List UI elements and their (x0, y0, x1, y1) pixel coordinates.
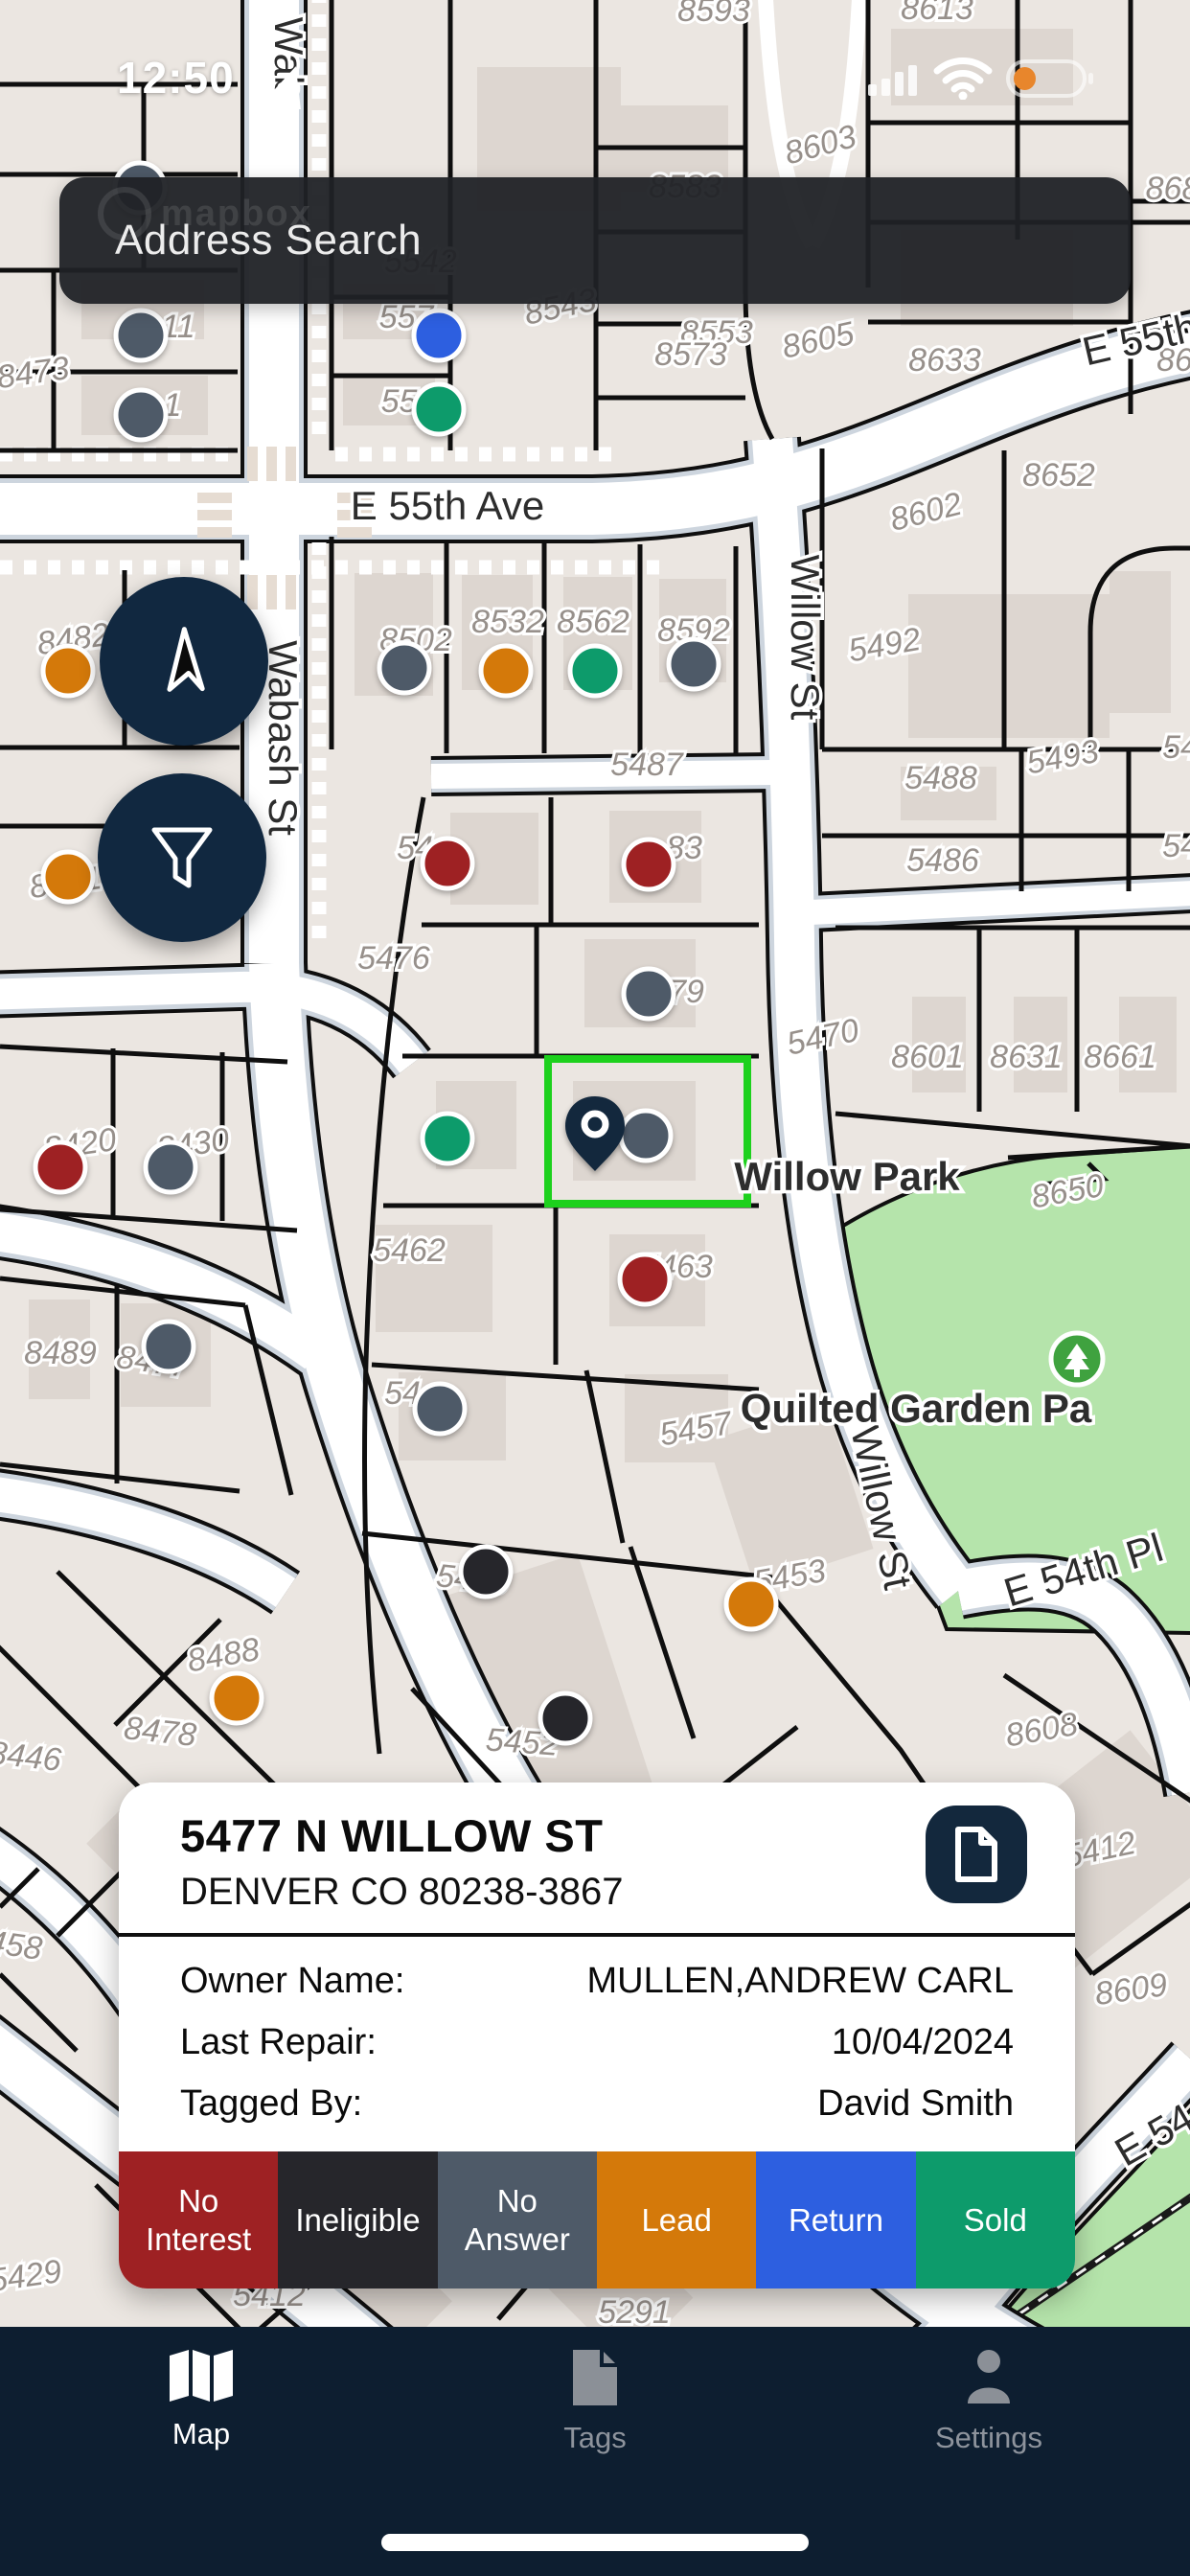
status-button-return[interactable]: Return (756, 2151, 915, 2288)
property-field-row: Owner Name:MULLEN,ANDREW CARL (180, 1950, 1014, 2012)
parcel-number-label: 8489 (24, 1335, 97, 1371)
navigation-arrow-icon (141, 618, 227, 704)
field-label: Last Repair: (180, 2022, 377, 2063)
status-button-lead[interactable]: Lead (597, 2151, 756, 2288)
map-status-dot-no_answer[interactable] (624, 969, 674, 1019)
map-status-dot-no_interest[interactable] (624, 839, 674, 889)
status-button-sold[interactable]: Sold (916, 2151, 1075, 2288)
mapbox-watermark: mapbox (98, 187, 312, 241)
locate-button[interactable] (100, 577, 268, 746)
street-name-label: Quilted Garden Pa (741, 1386, 1092, 1431)
parcel-number-label: 8613 (901, 0, 973, 27)
map-status-dot-sold[interactable] (570, 646, 620, 696)
map-status-dot-no_answer[interactable] (146, 1142, 195, 1192)
status-button-ineligible[interactable]: Ineligible (278, 2151, 437, 2288)
ios-status-bar: 12:50 (0, 52, 1190, 109)
nav-tab-map[interactable]: Map (77, 2348, 326, 2451)
map-status-dot-sold[interactable] (423, 1114, 472, 1163)
property-field-row: Last Repair:10/04/2024 (180, 2012, 1014, 2073)
nav-tab-label: Tags (563, 2421, 626, 2455)
parcel-number-label: 8631 (990, 1039, 1063, 1075)
park-tree-icon (1051, 1333, 1103, 1385)
parcel-number-label: 5486 (906, 842, 979, 879)
field-label: Owner Name: (180, 1961, 404, 2002)
map-status-dot-ineligible[interactable] (461, 1547, 511, 1597)
tags-file-icon (569, 2348, 621, 2407)
parcel-number-label: 5291 (598, 2294, 671, 2331)
parcel-number-label: 8562 (557, 604, 629, 640)
field-label: Tagged By: (180, 2083, 362, 2125)
filter-button[interactable] (98, 773, 266, 942)
map-status-dot-ineligible[interactable] (540, 1693, 590, 1743)
map-icon (168, 2348, 235, 2403)
parcel-number-label: 8573 (654, 336, 727, 373)
property-address: 5477 N WILLOW ST (180, 1809, 604, 1862)
parcel-number-label: 8532 (471, 604, 544, 640)
field-value: MULLEN,ANDREW CARL (586, 1961, 1014, 2002)
parcel-number-label: 8601 (891, 1039, 964, 1075)
field-value: 10/04/2024 (832, 2022, 1014, 2063)
map-status-dot-no_answer[interactable] (144, 1322, 194, 1371)
home-indicator[interactable] (381, 2534, 809, 2551)
map-status-dot-return[interactable] (414, 310, 464, 360)
filter-funnel-icon (141, 816, 223, 899)
parcel-number-label: 5487 (610, 747, 684, 783)
parcel-number-label: 54 (1162, 729, 1190, 766)
cellular-signal-icon (868, 59, 920, 98)
parcel-number-label: 868 (1146, 171, 1190, 207)
nav-tab-label: Map (172, 2417, 230, 2451)
parcel-number-label: 8661 (1084, 1039, 1156, 1075)
property-document-button[interactable] (926, 1805, 1027, 1903)
nav-tab-settings[interactable]: Settings (864, 2348, 1113, 2455)
map-status-dot-lead[interactable] (212, 1673, 262, 1723)
map-status-dot-lead[interactable] (726, 1579, 776, 1629)
parcel-number-label: 8652 (1022, 457, 1095, 494)
map-status-dot-no_answer[interactable] (116, 310, 166, 360)
parcel-number-label: 5476 (357, 940, 430, 977)
nav-tab-label: Settings (935, 2421, 1042, 2455)
nav-tab-tags[interactable]: Tags (470, 2348, 720, 2455)
parcel-number-label: 458 (0, 1923, 44, 1967)
map-status-dot-lead[interactable] (481, 646, 531, 696)
status-button-no_answer[interactable]: No Answer (438, 2151, 597, 2288)
status-buttons-row: No InterestIneligibleNo AnswerLeadReturn… (119, 2151, 1075, 2288)
map-status-dot-no_interest[interactable] (35, 1142, 85, 1192)
parcel-number-label: 54 (1162, 828, 1190, 864)
wifi-icon (933, 57, 993, 100)
parcel-number-label: 8446 (0, 1735, 63, 1779)
map-status-dot-no_interest[interactable] (620, 1254, 670, 1304)
map-status-dot-no_interest[interactable] (423, 839, 472, 888)
mapbox-logo-icon (98, 187, 151, 241)
battery-icon (1006, 57, 1094, 100)
location-services-icon (266, 63, 312, 109)
map-status-dot-lead[interactable] (43, 852, 93, 902)
parcel-number-label: 5462 (373, 1232, 446, 1269)
property-fields: Owner Name:MULLEN,ANDREW CARLLast Repair… (119, 1937, 1075, 2151)
map-status-dot-no_answer[interactable] (669, 639, 719, 689)
parcel-number-label: 8593 (677, 0, 750, 29)
map-status-dot-no_answer[interactable] (379, 643, 429, 693)
parcel-number-label: 8633 (908, 342, 981, 379)
street-name-label: Willow St (783, 555, 828, 721)
map-status-dot-no_answer[interactable] (116, 390, 166, 440)
document-icon (952, 1826, 1000, 1883)
status-bar-time: 12:50 (117, 52, 235, 103)
settings-person-icon (962, 2348, 1016, 2407)
property-field-row: Tagged By:David Smith (180, 2073, 1014, 2134)
status-button-no_interest[interactable]: No Interest (119, 2151, 278, 2288)
street-name-label: E 55th Ave (351, 483, 544, 528)
field-value: David Smith (817, 2083, 1014, 2125)
property-card-header: 5477 N WILLOW ST DENVER CO 80238-3867 (119, 1782, 1075, 1933)
address-search-bar[interactable]: mapbox Address Search (59, 177, 1131, 304)
property-city-line: DENVER CO 80238-3867 (180, 1871, 623, 1914)
map-status-dot-sold[interactable] (414, 384, 464, 434)
property-card: 5477 N WILLOW ST DENVER CO 80238-3867 Ow… (119, 1782, 1075, 2288)
parcel-number-label: 5488 (904, 760, 977, 796)
map-status-dot-lead[interactable] (43, 646, 93, 696)
map-status-dot-no_answer[interactable] (621, 1111, 671, 1161)
map-status-dot-no_answer[interactable] (415, 1384, 465, 1434)
parcel-number-label: 8478 (123, 1710, 198, 1754)
street-name-label: Willow Park (734, 1154, 960, 1199)
